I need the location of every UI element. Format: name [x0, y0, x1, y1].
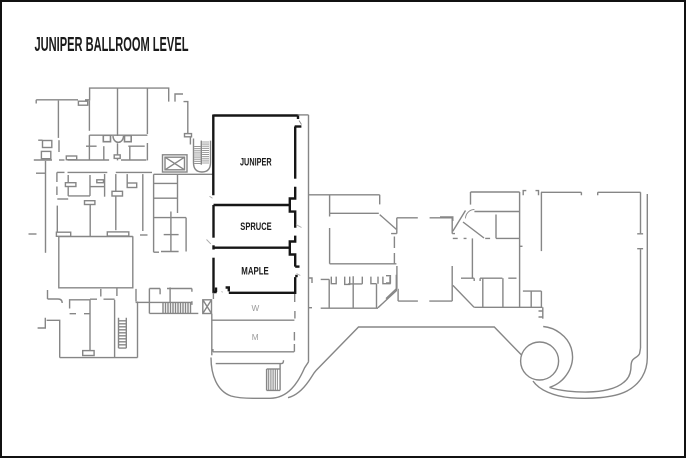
svg-text:W: W [252, 304, 260, 313]
svg-text:JUNIPER BALLROOM LEVEL: JUNIPER BALLROOM LEVEL [35, 34, 189, 56]
svg-text:M: M [252, 333, 259, 342]
svg-text:JUNIPER: JUNIPER [240, 157, 272, 169]
svg-text:MAPLE: MAPLE [241, 266, 268, 278]
svg-text:SPRUCE: SPRUCE [240, 221, 271, 233]
